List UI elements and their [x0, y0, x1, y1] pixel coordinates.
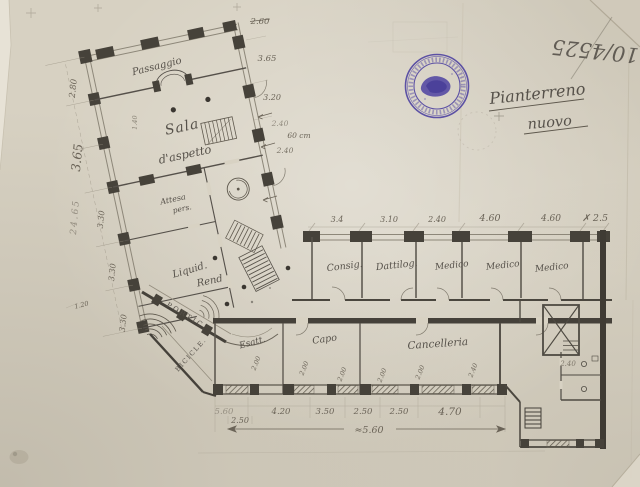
dimension-label: 4.20 — [271, 407, 292, 417]
wc-fixture — [581, 386, 586, 391]
dimension-label: 2.50 — [389, 407, 410, 417]
stair-flight — [239, 246, 279, 292]
dimension-label: 3.65 — [258, 54, 277, 64]
ink-stamp — [406, 55, 469, 118]
dimension-label: 2.40 — [276, 146, 294, 155]
dimension-label: 2.60 — [250, 17, 271, 27]
room-label: Medico — [485, 259, 521, 273]
room-label: Medico — [434, 259, 470, 273]
drawing-sheet: Passaggio Sala d'aspetto Attesa pers. Li… — [0, 0, 640, 487]
room-label-passaggio: Passaggio — [130, 55, 183, 78]
dimension-label: 2.40 — [271, 119, 289, 128]
dimension-label: 3.30 — [118, 314, 129, 333]
bicycles-label: BICICLE. — [174, 336, 209, 373]
room-label-sala: Sala — [164, 116, 201, 139]
erased-stamp-ghost — [458, 112, 496, 150]
window-dim: 2.00 — [413, 364, 426, 381]
dimension-label: ✗ 2.5 — [582, 213, 608, 224]
dimension-label: 2.40 — [427, 215, 446, 224]
window-dim: 2.00 — [335, 366, 348, 383]
dimension-label-sub: 2.50 — [230, 416, 249, 425]
dimension-label: 2.50 — [353, 407, 374, 417]
small-stair — [525, 408, 541, 428]
register-marks — [26, 3, 241, 18]
dimension-label: 3.4 — [331, 215, 344, 224]
plan-title: Pianterreno — [487, 79, 586, 108]
dimension-label: 3.65 — [68, 143, 86, 172]
window-dim: 2.00 — [375, 367, 388, 384]
dimension-label: 4.70 — [437, 406, 462, 418]
dimension-label-overall: 24.65 — [69, 199, 82, 236]
room-label: Dattilog. — [374, 258, 418, 273]
dimension-label: 3.10 — [380, 215, 398, 224]
dimension-label: 3.20 — [263, 93, 281, 102]
dimension-label: 4.60 — [540, 214, 561, 224]
dimension-label: 4.60 — [478, 213, 500, 224]
door-swings — [332, 287, 561, 300]
room-label-sala-2: d'aspetto — [157, 142, 212, 167]
dimension-label: 3.50 — [316, 407, 336, 417]
staircase — [201, 117, 237, 145]
room-label: Cancelleria — [407, 336, 468, 352]
dimension-label: 3.30 — [96, 210, 107, 229]
portico-label: PORTIC. — [165, 301, 210, 332]
room-label: Medico — [534, 261, 570, 275]
dimension-label: 60 cm — [287, 131, 310, 140]
curved-steps — [198, 296, 223, 321]
window-dim: 2.00 — [297, 360, 310, 377]
room-label: Capo — [312, 332, 338, 346]
dimension-label-inner: 1.40 — [131, 115, 139, 129]
window-dim: 2.40 — [466, 362, 479, 379]
titles: 10/4525 Pianterreno nuovo — [487, 17, 639, 134]
spiral-stair — [225, 176, 251, 202]
room-label-attesa-2: pers. — [172, 202, 193, 215]
room-label: Consig. — [326, 259, 363, 274]
dimension-label: 2.80 — [68, 78, 80, 99]
room-label-rend: Rend — [195, 273, 224, 289]
dimension-label-span: ≈5.60 — [354, 425, 383, 436]
registry-number: 10/4525 — [551, 34, 640, 67]
room-label: Esatt. — [237, 335, 266, 352]
column — [170, 107, 176, 113]
dimension-label-right: 2.40 — [559, 360, 576, 368]
floor-plan-drawing: Passaggio Sala d'aspetto Attesa pers. Li… — [0, 0, 640, 487]
dimension-label: 3.30 — [107, 263, 118, 282]
right-wing-labels: 3.4 3.10 2.40 4.60 4.60 ✗ 2.5 Consig. Da… — [215, 213, 609, 436]
wc-fixture — [581, 361, 586, 366]
dimension-label-small: 1.20 — [73, 299, 89, 310]
ink-smudge — [10, 450, 29, 464]
plan-subtitle: nuovo — [527, 113, 573, 133]
column — [205, 96, 211, 102]
window-dim: 2.00 — [249, 355, 262, 372]
